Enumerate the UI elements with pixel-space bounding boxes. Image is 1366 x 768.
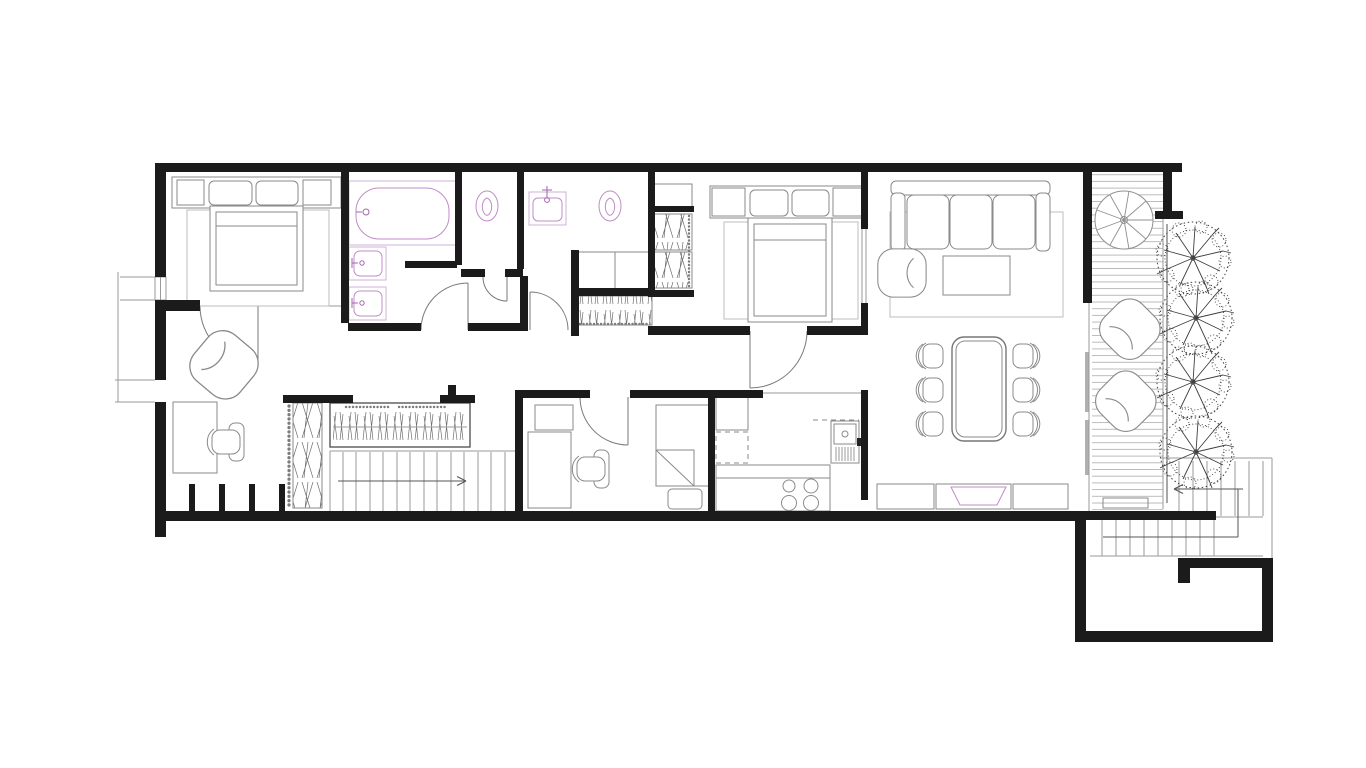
pillow [792, 190, 829, 216]
pillow [750, 190, 788, 216]
nightstand [668, 489, 702, 509]
coffee-table [943, 256, 1010, 295]
floor-plan-drawing [0, 0, 1366, 768]
dining-area [916, 337, 1040, 441]
floor-plan-page [0, 0, 1366, 768]
office-desk [173, 402, 217, 473]
bedroom-wardrobe-hatch [652, 214, 692, 250]
headboard-cabinet [712, 188, 745, 216]
bench-cabinet [576, 252, 615, 289]
headboard-cabinet [303, 180, 331, 205]
headboard-cabinet [833, 188, 863, 216]
single-bed [656, 405, 712, 486]
spiral-staircase [1095, 191, 1153, 249]
pillow [209, 181, 252, 205]
bench-cabinet [615, 252, 652, 289]
sofa-cushion [950, 195, 992, 249]
pillow [256, 181, 298, 205]
sofa-cushion [993, 195, 1035, 249]
study-desk [528, 432, 571, 508]
second-bed [748, 218, 832, 322]
dining-table [952, 337, 1006, 441]
living-armchair [878, 249, 926, 297]
sofa [891, 181, 1050, 251]
office-wardrobe-hatch [293, 403, 322, 508]
kitchen-cabinet [716, 397, 748, 430]
closet-shelf [652, 184, 692, 208]
study-cabinet [535, 405, 573, 430]
terrace-sliding-door-panel [1085, 420, 1089, 475]
kitchen-sink-unit [831, 421, 862, 463]
bedroom-wardrobe-hatch [652, 252, 692, 288]
hall-wardrobe-hatch [576, 296, 652, 325]
headboard-cabinet [177, 180, 204, 205]
terrace-sliding-door-panel [1085, 352, 1089, 412]
master-bed [210, 206, 303, 291]
sofa-cushion [907, 195, 949, 249]
